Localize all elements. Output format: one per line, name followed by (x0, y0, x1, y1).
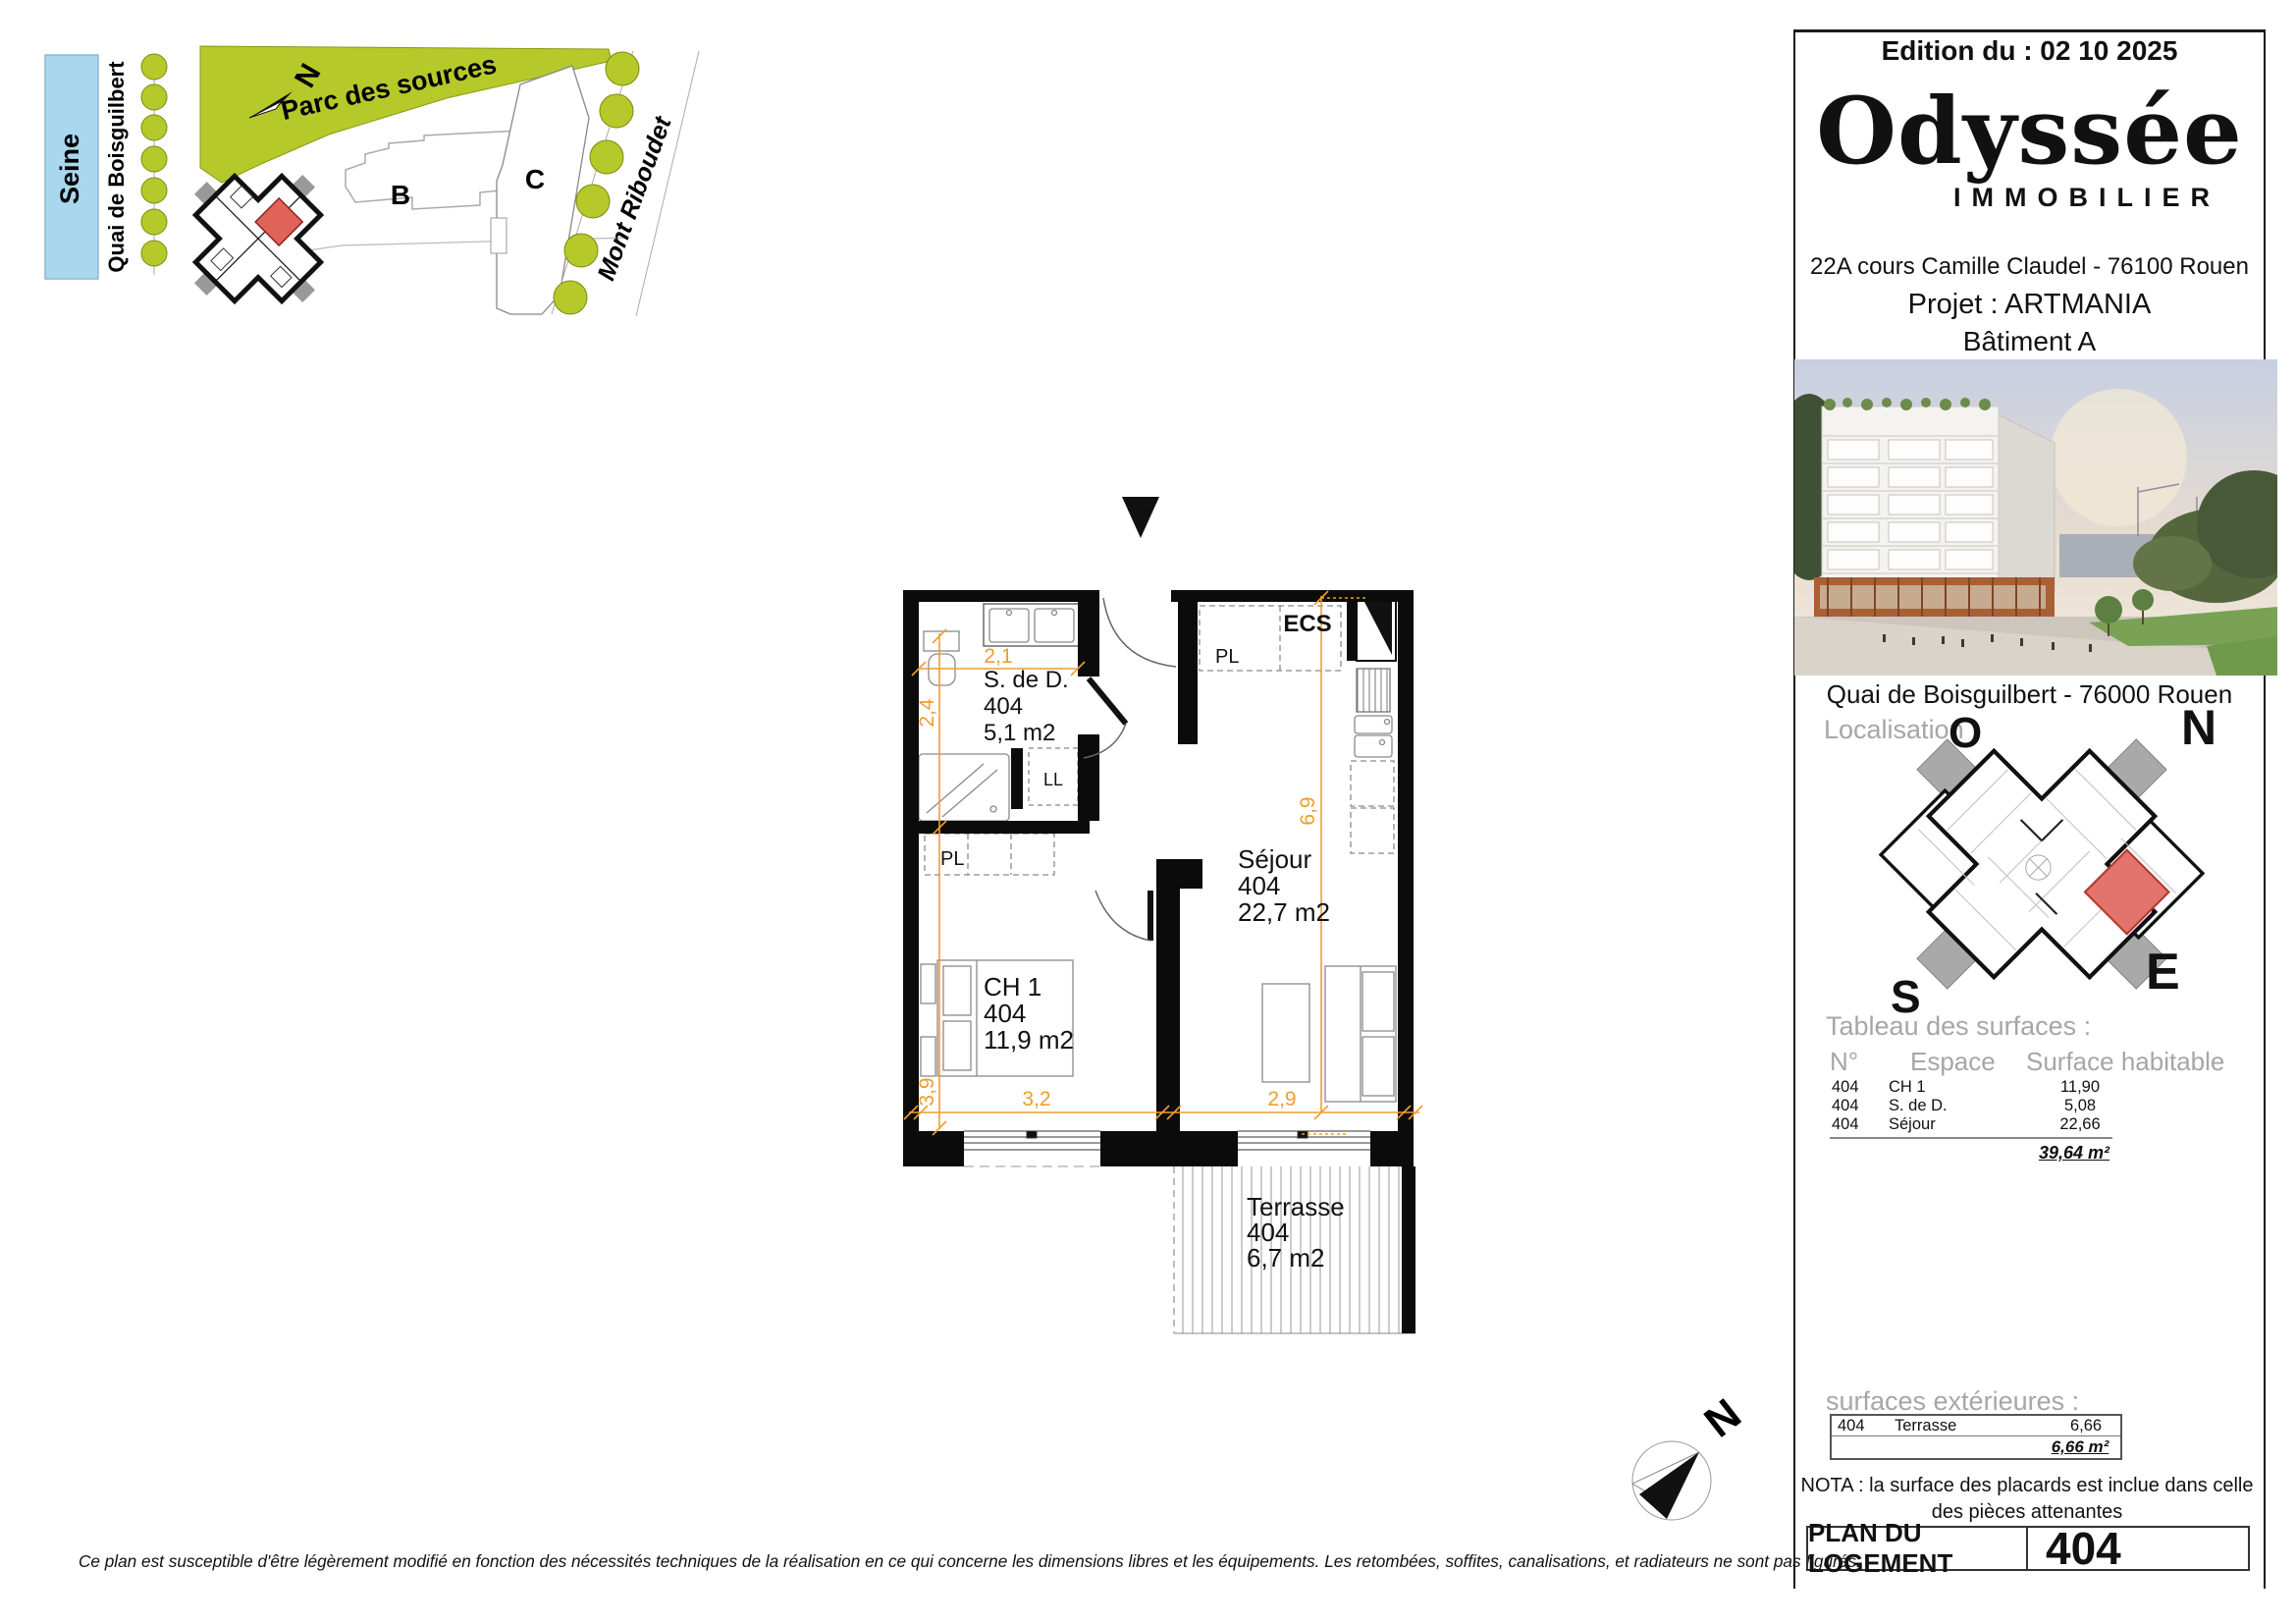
row-space: Séjour (1889, 1115, 2036, 1134)
floor-plan: 2,1 2,4 3,9 6,9 3,2 2,9 S. de D. 404 5,1… (874, 471, 1443, 1355)
disclaimer-text: Ce plan est susceptible d'être légèremen… (79, 1551, 1649, 1572)
closet-entry-label: PL (1215, 646, 1239, 668)
room-sdd-name: S. de D. (984, 667, 1069, 693)
room-ch1-name: CH 1 (984, 972, 1041, 1001)
plan-title: PLAN DU LOGEMENT (1808, 1528, 2028, 1569)
ecs-label: ECS (1283, 611, 1331, 637)
compass-n-label: N (2181, 699, 2216, 756)
project-name: Projet : ARTMANIA (1793, 289, 2266, 321)
exterior-total: 6,66 m² (2036, 1436, 2124, 1458)
dim-sdd-height: 2,4 (916, 698, 938, 728)
room-sdd-num: 404 (984, 693, 1023, 720)
building-name: Bâtiment A (1793, 326, 2266, 357)
kitchen-counter (1351, 808, 1394, 853)
table-row: 6,66 m² (1832, 1436, 2120, 1458)
site-map: Seine Quai de Boisguilbert Parc des sour… (29, 29, 726, 363)
edition-date: Edition du : 02 10 2025 (1793, 35, 2266, 67)
room-ch1-area: 11,9 m2 (984, 1025, 1074, 1055)
nota-line1: NOTA : la surface des placards est inclu… (1796, 1473, 2258, 1499)
quai-label: Quai de Boisguilbert (104, 61, 129, 273)
toilet (929, 654, 955, 685)
compass: N (1600, 1375, 1787, 1561)
room-terrasse-area: 6,7 m2 (1247, 1243, 1325, 1272)
surfaces-table-title: Tableau des surfaces : (1826, 1011, 2091, 1042)
dim-ch1-width: 3,2 (1022, 1088, 1050, 1110)
table-row: 404 Séjour 22,66 (1832, 1115, 2128, 1134)
drainboard (1357, 669, 1390, 712)
surfaces-table: 404 CH 1 11,90 404 S. de D. 5,08 404 Séj… (1832, 1078, 2128, 1134)
seine-label: Seine (55, 134, 84, 204)
room-sdd-area: 5,1 m2 (984, 720, 1055, 746)
dim-ch1-height: 3,9 (916, 1077, 938, 1106)
dim-sdd-width: 2,1 (984, 645, 1012, 668)
panel-top-border (1793, 29, 2266, 32)
row-space: CH 1 (1889, 1078, 2036, 1097)
building-b-label: B (391, 180, 410, 210)
row-area: 6,66 (2042, 1417, 2130, 1435)
row-num: 404 (1832, 1097, 1889, 1115)
row-area: 11,90 (2036, 1078, 2124, 1097)
building-photo (1794, 359, 2277, 676)
agency-address: 22A cours Camille Claudel - 76100 Rouen (1793, 253, 2266, 281)
row-num: 404 (1832, 1417, 1895, 1435)
logo-wordmark: Odyssée (1793, 82, 2266, 181)
table-row: 404 S. de D. 5,08 (1832, 1097, 2128, 1115)
room-sejour-num: 404 (1238, 871, 1280, 900)
col-header-area: Surface habitable (2026, 1047, 2224, 1077)
room-sejour-area: 22,7 m2 (1238, 897, 1330, 927)
tree-row-left (141, 54, 167, 275)
table-rule (1830, 1137, 2112, 1139)
exterior-table-title: surfaces extérieures : (1826, 1386, 2079, 1417)
row-num: 404 (1832, 1078, 1889, 1097)
building-c-label: C (525, 164, 545, 194)
dim-sejour-height: 6,9 (1297, 796, 1319, 825)
compass-e-label: E (2146, 943, 2180, 1001)
col-header-space: Espace (1910, 1047, 1996, 1077)
col-header-num: N° (1830, 1047, 1858, 1077)
title-block: PLAN DU LOGEMENT 404 (1806, 1526, 2250, 1571)
surfaces-total: 39,64 m² (2028, 1143, 2120, 1164)
table-row: 404 CH 1 11,90 (1832, 1078, 2128, 1097)
row-space: S. de D. (1889, 1097, 2036, 1115)
logo-subtitle: IMMOBILIER (1793, 183, 2220, 213)
coffee-table (1262, 984, 1309, 1082)
row-num: 404 (1832, 1115, 1889, 1134)
unit-number: 404 (2028, 1528, 2248, 1569)
entrance-arrow-icon (1122, 497, 1159, 538)
kitchen-counter (1351, 761, 1394, 806)
room-ch1-num: 404 (984, 999, 1026, 1028)
closet-ch1-label: PL (940, 848, 964, 870)
row-area: 22,66 (2036, 1115, 2124, 1134)
exterior-table: 404 Terrasse 6,66 6,66 m² (1830, 1414, 2122, 1460)
room-sejour-name: Séjour (1238, 844, 1311, 874)
table-row: 404 Terrasse 6,66 (1832, 1416, 2120, 1436)
kitchen-sink (1355, 735, 1392, 757)
dim-sejour-width: 2,9 (1267, 1088, 1296, 1110)
row-area: 5,08 (2036, 1097, 2124, 1115)
row-space: Terrasse (1895, 1417, 2042, 1435)
compass-north-label: N (1695, 1389, 1749, 1446)
compass-o-label: O (1949, 709, 1982, 758)
washing-machine-label: LL (1043, 770, 1063, 789)
